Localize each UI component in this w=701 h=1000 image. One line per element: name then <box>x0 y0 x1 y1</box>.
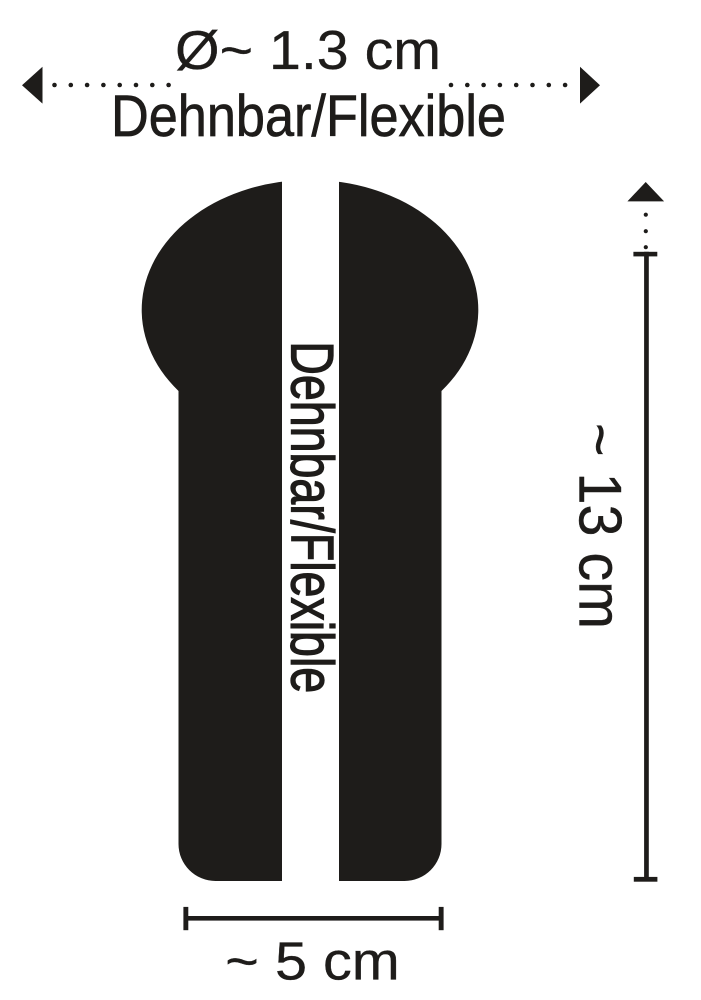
svg-text:Dehnbar/Flexible: Dehnbar/Flexible <box>111 84 506 149</box>
svg-text:Ø~ 1.3 cm: Ø~ 1.3 cm <box>175 19 441 81</box>
svg-text:Dehnbar/Flexible: Dehnbar/Flexible <box>279 341 346 693</box>
svg-text:~ 13 cm: ~ 13 cm <box>567 423 635 629</box>
svg-text:~ 5 cm: ~ 5 cm <box>225 932 399 992</box>
